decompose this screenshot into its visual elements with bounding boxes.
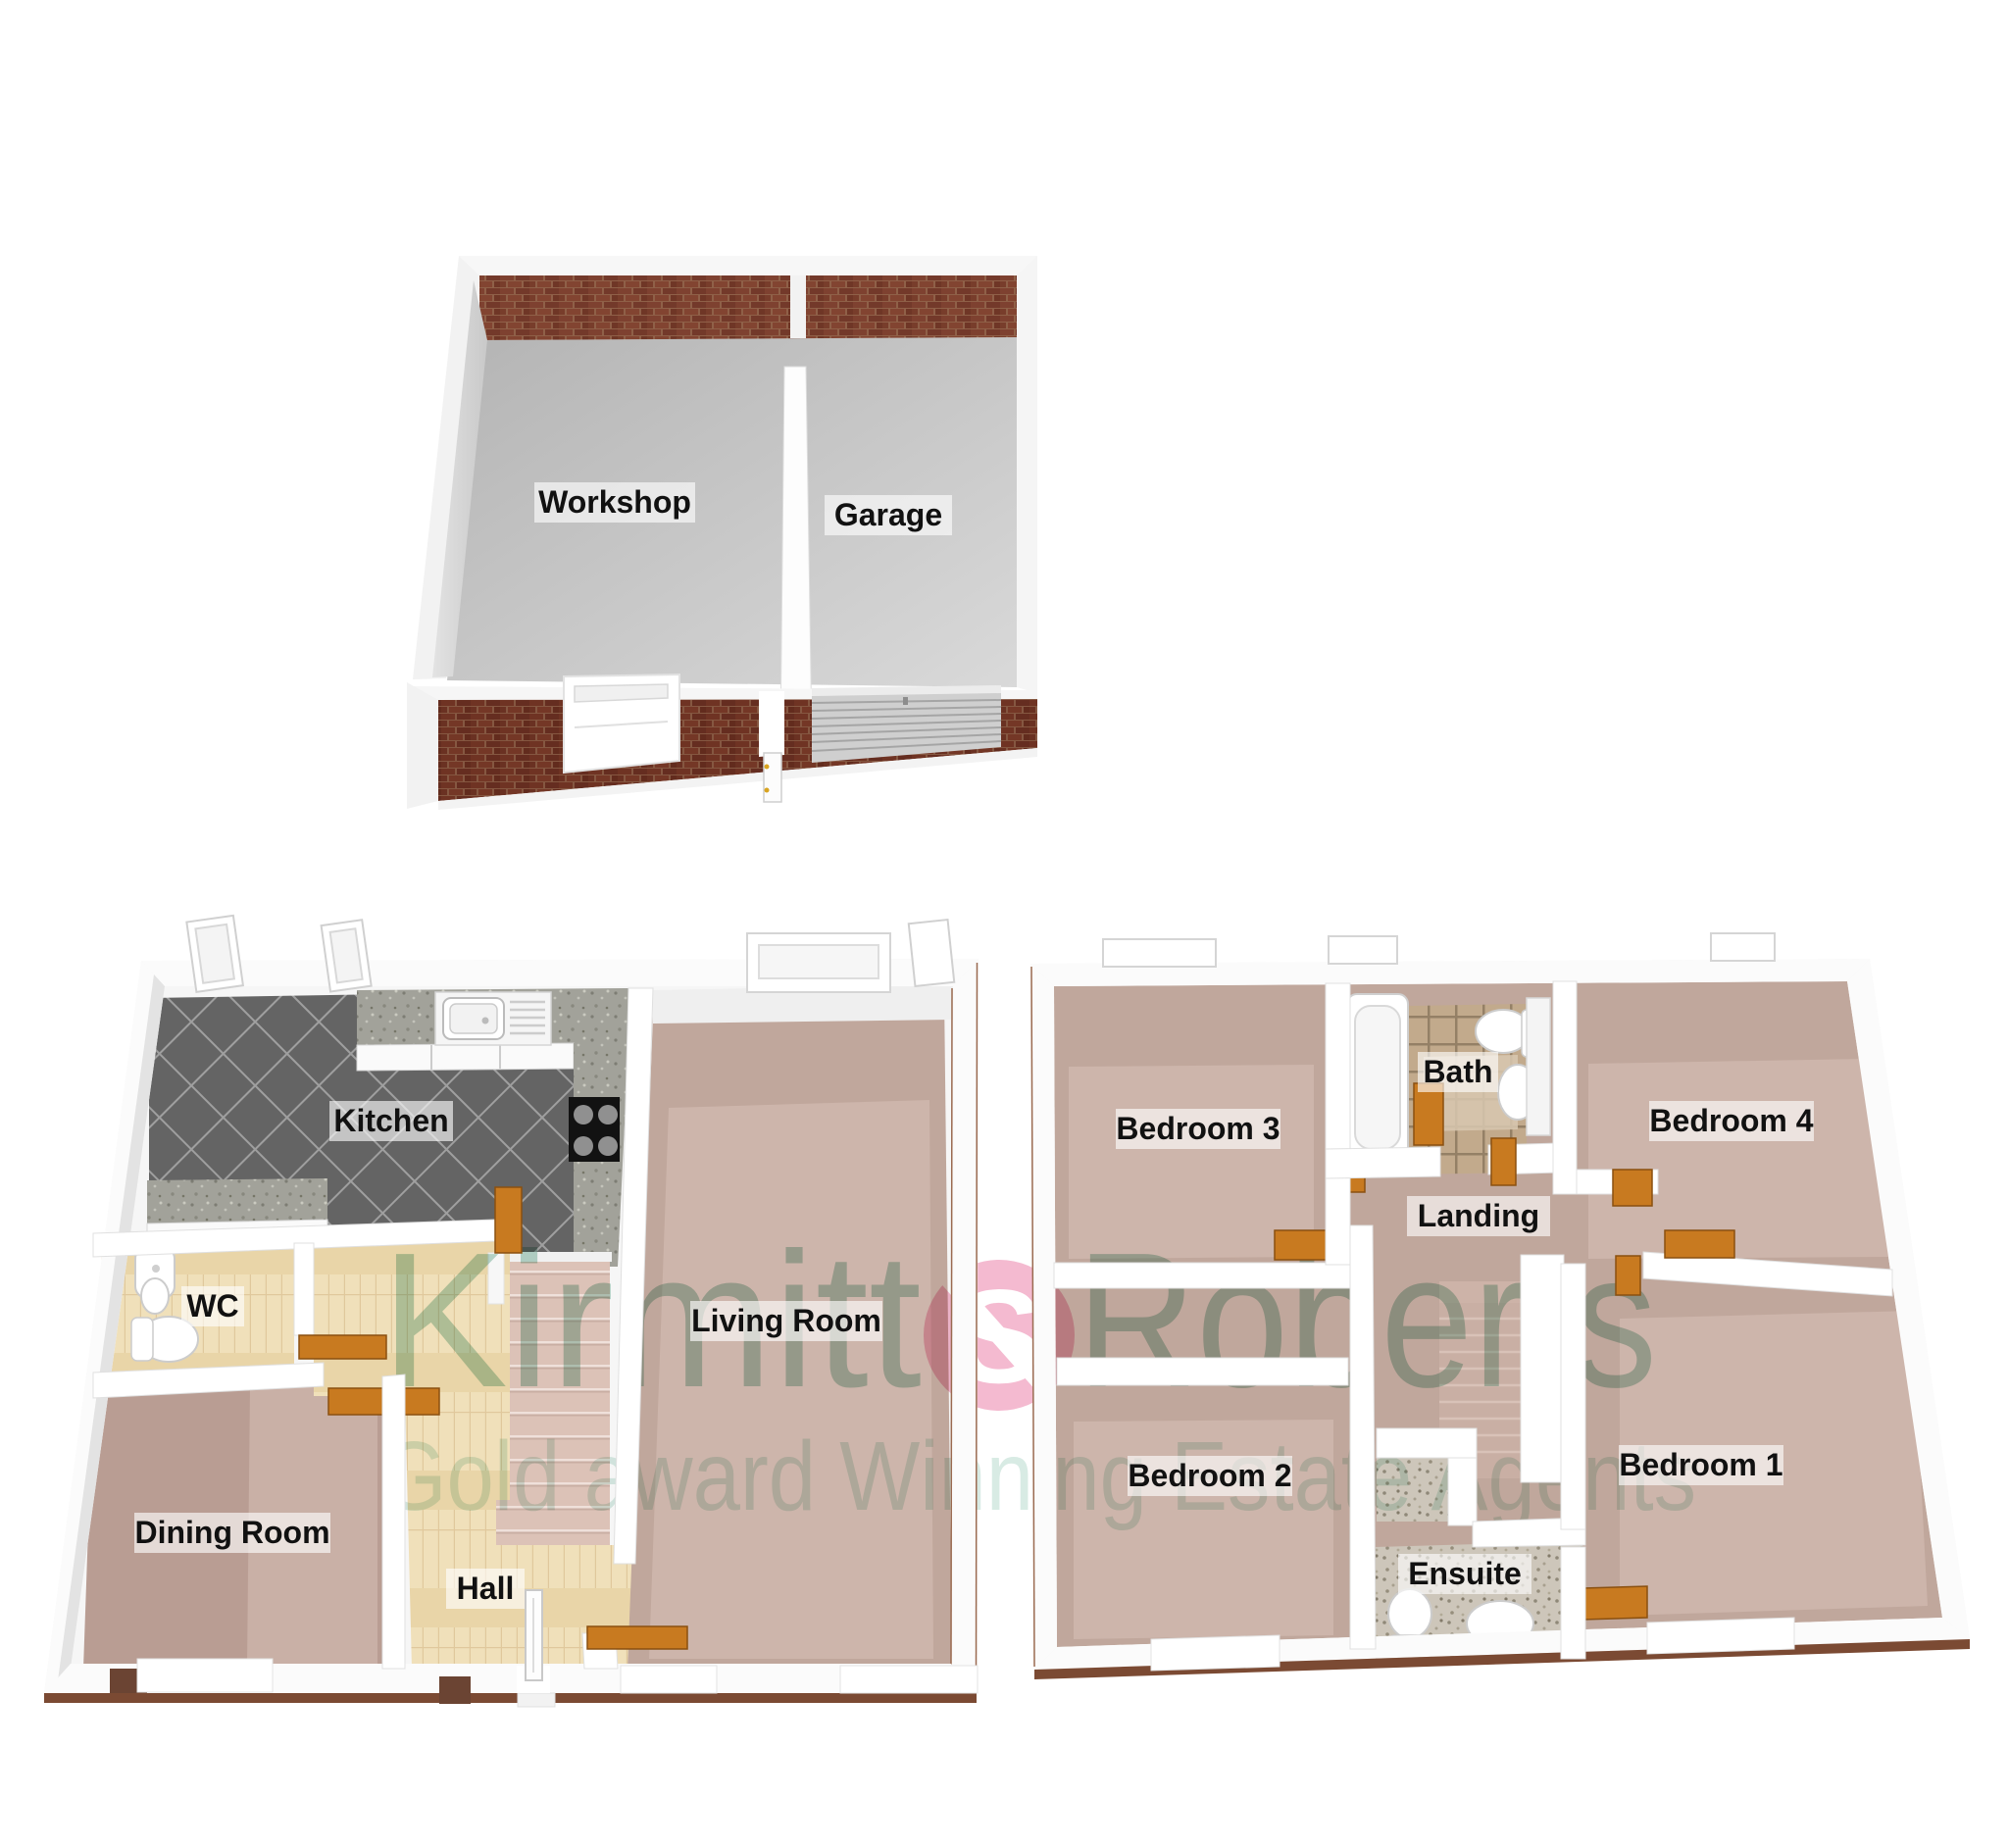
- svg-text:WC: WC: [186, 1288, 238, 1324]
- svg-text:Garage: Garage: [834, 497, 942, 532]
- svg-text:Bedroom 3: Bedroom 3: [1116, 1111, 1280, 1146]
- svg-text:Bath: Bath: [1423, 1054, 1492, 1089]
- svg-text:Kitchen: Kitchen: [333, 1103, 448, 1138]
- svg-text:Workshop: Workshop: [538, 484, 691, 520]
- svg-text:Living Room: Living Room: [691, 1303, 881, 1338]
- svg-text:Bedroom 2: Bedroom 2: [1128, 1458, 1291, 1493]
- svg-text:Bedroom 4: Bedroom 4: [1649, 1103, 1813, 1138]
- svg-text:Dining Room: Dining Room: [134, 1515, 329, 1550]
- svg-text:Bedroom 1: Bedroom 1: [1619, 1447, 1782, 1482]
- svg-text:Landing: Landing: [1418, 1198, 1539, 1233]
- svg-text:Hall: Hall: [457, 1571, 515, 1606]
- svg-text:Ensuite: Ensuite: [1408, 1556, 1522, 1591]
